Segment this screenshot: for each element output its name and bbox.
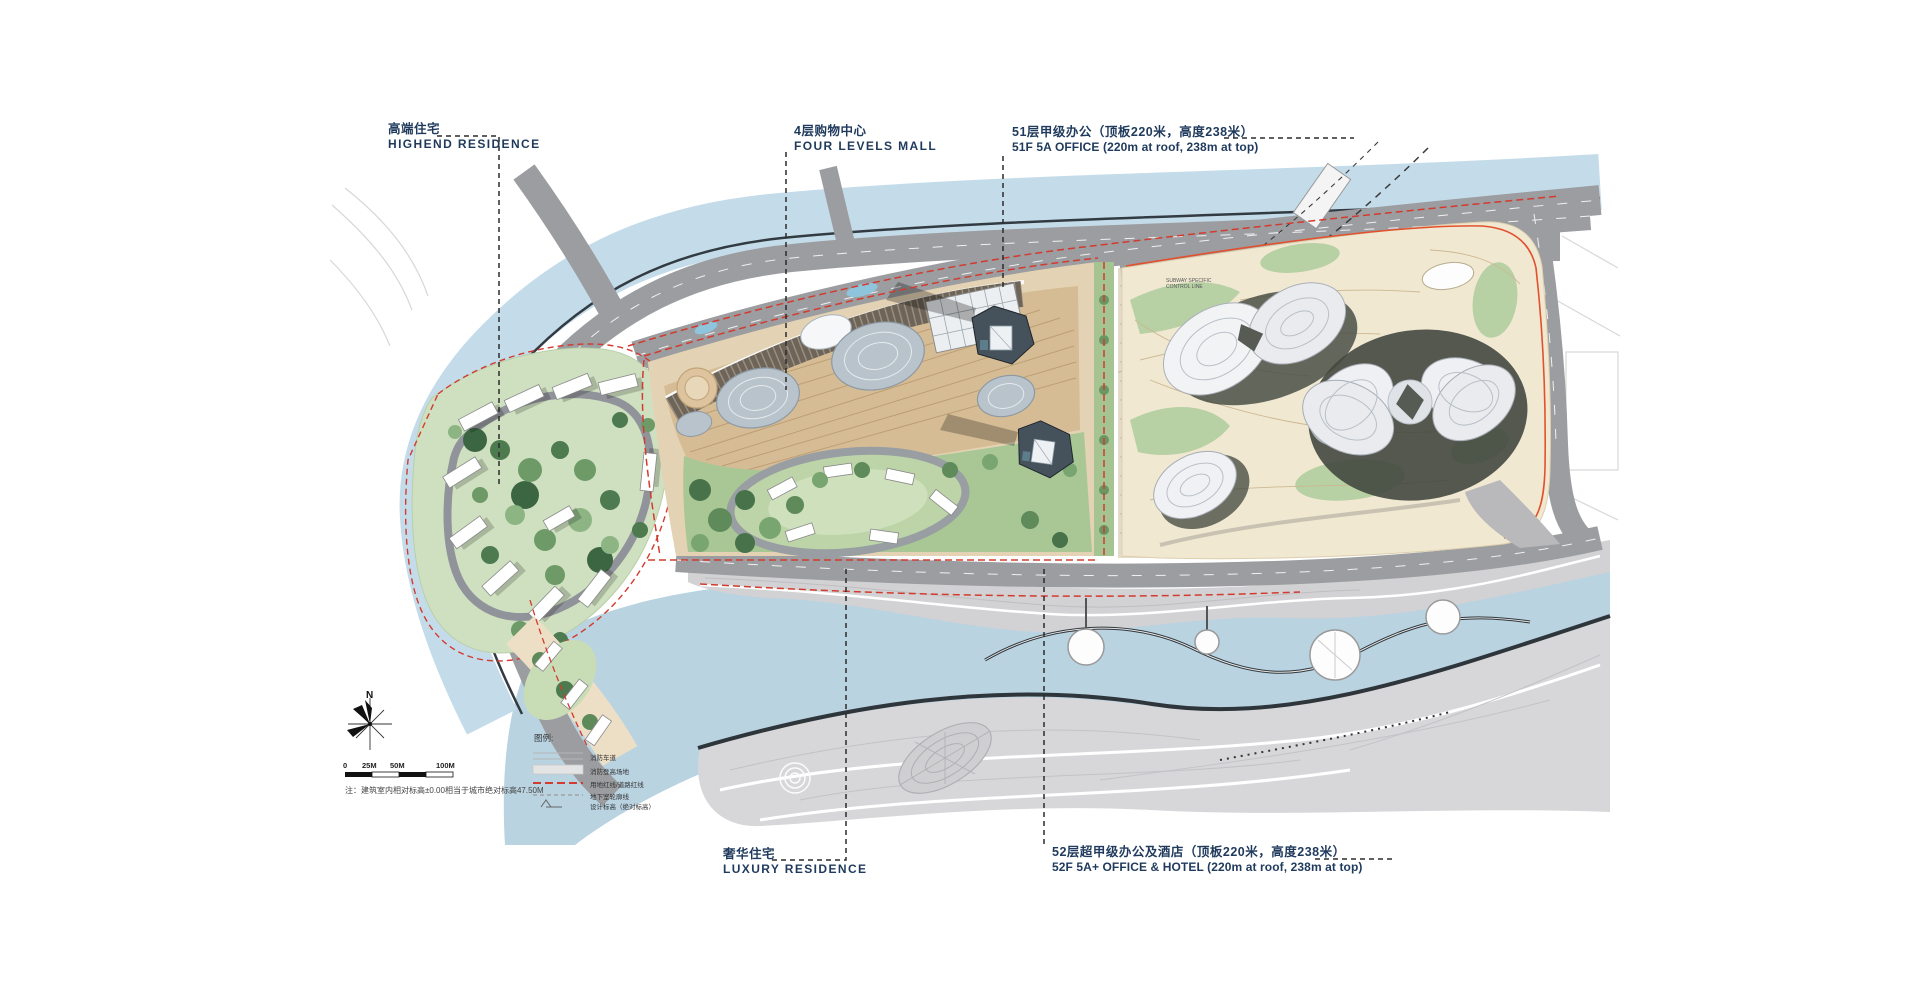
legend-item-fire-area: 消防登高场地: [590, 766, 629, 776]
north-arrow: [347, 698, 392, 750]
label-office-hotel-52f-en: 52F 5A+ OFFICE & HOTEL (220m at roof, 23…: [1052, 860, 1363, 875]
scale-label-100m: 100M: [436, 761, 455, 770]
site-plan-drawing: [0, 0, 1920, 1000]
label-luxury-residence-en: LUXURY RESIDENCE: [723, 862, 867, 877]
scale-label-0: 0: [343, 761, 347, 770]
label-office-hotel-52f: 52层超甲级办公及酒店（顶板220米，高度238米） 52F 5A+ OFFIC…: [1052, 845, 1363, 875]
scale-label-25m: 25M: [362, 761, 377, 770]
label-four-levels-mall-en: FOUR LEVELS MALL: [794, 139, 937, 154]
label-highend-residence: 高端住宅 HIGHEND RESIDENCE: [388, 122, 540, 152]
label-office-51f-cn: 51层甲级办公（顶板220米，高度238米）: [1012, 125, 1258, 140]
label-office-hotel-52f-cn: 52层超甲级办公及酒店（顶板220米，高度238米）: [1052, 845, 1363, 860]
label-luxury-residence: 奢华住宅 LUXURY RESIDENCE: [723, 847, 867, 877]
legend-item-red-line: 用地红线/道路红线: [590, 779, 644, 789]
central-site: [648, 262, 1176, 564]
label-four-levels-mall-cn: 4层购物中心: [794, 124, 937, 139]
subway-control-note-line2: CONTROL LINE: [1166, 284, 1211, 290]
subway-control-note: SUBWAY SPECIFIC CONTROL LINE: [1166, 278, 1211, 290]
legend-item-fire-lane: 消防车道: [590, 752, 616, 762]
legend-title: 图例:: [534, 732, 553, 744]
label-luxury-residence-cn: 奢华住宅: [723, 847, 867, 862]
east-park: [1122, 222, 1560, 559]
label-highend-residence-en: HIGHEND RESIDENCE: [388, 137, 540, 152]
roundabout-plaza: [677, 368, 717, 408]
north-label: N: [366, 690, 373, 701]
legend-item-spot-level: 设计标高（绝对标高）: [590, 801, 655, 811]
legend-item-basement: 地下室轮廓线: [590, 791, 629, 801]
legend-fire-area-swatch: [533, 765, 583, 774]
scale-bar: [345, 772, 453, 777]
label-four-levels-mall: 4层购物中心 FOUR LEVELS MALL: [794, 124, 937, 154]
label-office-51f: 51层甲级办公（顶板220米，高度238米） 51F 5A OFFICE (22…: [1012, 125, 1258, 155]
label-office-51f-en: 51F 5A OFFICE (220m at roof, 238m at top…: [1012, 140, 1258, 155]
masterplan-sheet: 高端住宅 HIGHEND RESIDENCE 4层购物中心 FOUR LEVEL…: [0, 0, 1920, 1000]
site-note: 注：建筑室内相对标高±0.00相当于城市绝对标高47.50M: [345, 785, 544, 796]
label-highend-residence-cn: 高端住宅: [388, 122, 540, 137]
scale-label-50m: 50M: [390, 761, 405, 770]
